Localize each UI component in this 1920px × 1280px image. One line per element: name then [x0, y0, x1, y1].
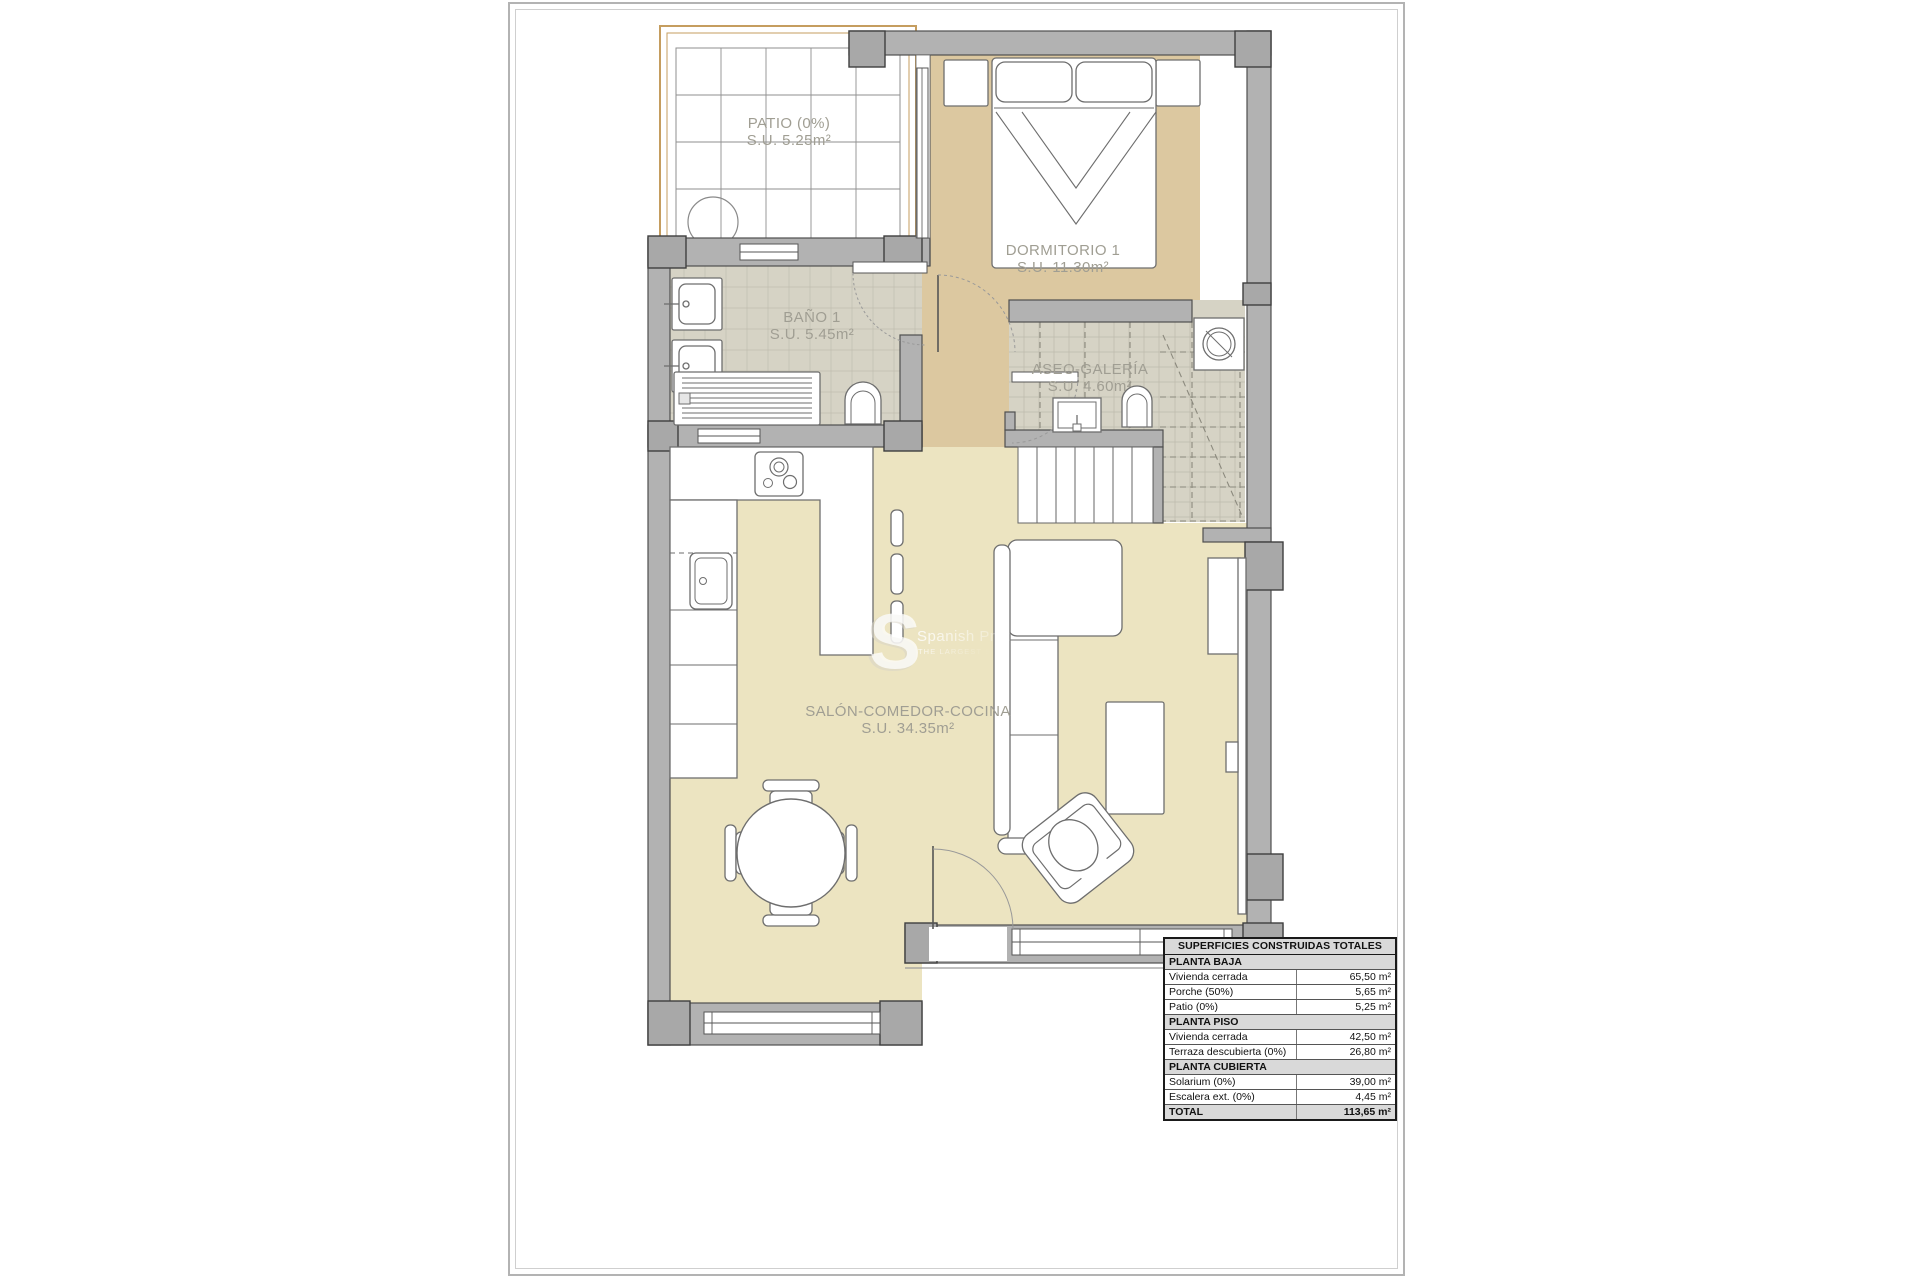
aseo-area-label: S.U. 4.60m² [1048, 378, 1132, 395]
dining-window-icon [704, 1012, 880, 1034]
dormitorio-area-label: S.U. 11.30m² [1017, 259, 1109, 276]
table-section-row: PLANTA CUBIERTA [1165, 1060, 1395, 1075]
aseo-door-jamb [1005, 412, 1015, 430]
table-row: Solarium (0%)39,00 m² [1165, 1075, 1395, 1090]
table-row: Terraza descubierta (0%)26,80 m² [1165, 1045, 1395, 1060]
row-value: 5,65 m² [1296, 985, 1395, 999]
row-value: 42,50 m² [1296, 1030, 1395, 1044]
salon-area-label: S.U. 34.35m² [861, 720, 954, 737]
sink-icon [664, 278, 722, 330]
bath-south-wall [648, 425, 922, 447]
surfaces-table: SUPERFICIES CONSTRUIDAS TOTALES PLANTA B… [1163, 937, 1397, 1121]
row-label: Vivienda cerrada [1165, 1030, 1296, 1044]
row-label: Vivienda cerrada [1165, 970, 1296, 984]
aseo-label: ASEO-GALERÍA [1032, 361, 1149, 378]
chair-icon [725, 825, 736, 881]
row-value: 65,50 m² [1296, 970, 1395, 984]
bedroom-south-wall [1009, 300, 1192, 322]
table-section-row: PLANTA PISO [1165, 1015, 1395, 1030]
dormitorio-label: DORMITORIO 1 [1006, 242, 1121, 259]
nightstand-icon [1156, 60, 1200, 106]
row-label: Solarium (0%) [1165, 1075, 1296, 1089]
watermark-line2: THE LARGEST SPANISH [918, 647, 1025, 656]
chair-icon [763, 915, 819, 926]
bano-area-label: S.U. 5.45m² [770, 326, 854, 343]
section-label: PLANTA PISO [1165, 1015, 1296, 1029]
row-value: 26,80 m² [1296, 1045, 1395, 1059]
page: S S Spanish Prope THE LARGEST SPANISH PA… [0, 0, 1920, 1280]
bed-icon [992, 58, 1156, 268]
row-label: Patio (0%) [1165, 1000, 1296, 1014]
utility-sink-icon [1053, 398, 1101, 432]
stairs-icon [1018, 447, 1153, 523]
row-value: 4,45 m² [1296, 1090, 1395, 1104]
left-wall [648, 238, 670, 1045]
coffee-table-icon [1106, 702, 1164, 814]
chair-icon [763, 780, 819, 791]
kitchen-counter-left [670, 500, 737, 778]
row-label: Porche (50%) [1165, 985, 1296, 999]
watermark-line1: Spanish Prope [917, 628, 1022, 645]
row-value: 5,25 m² [1296, 1000, 1395, 1014]
table-row: Patio (0%)5,25 m² [1165, 1000, 1395, 1015]
total-value: 113,65 m² [1296, 1105, 1395, 1119]
bath-window-icon [698, 429, 760, 443]
patio-window-icon [740, 244, 798, 260]
patio-area-label: S.U. 5.25m² [747, 132, 831, 149]
row-label: Terraza descubierta (0%) [1165, 1045, 1296, 1059]
table-section-row: PLANTA BAJA [1165, 955, 1395, 970]
patio-label: PATIO (0%) [748, 115, 831, 132]
right-wall [1247, 31, 1271, 963]
row-value: 39,00 m² [1296, 1075, 1395, 1089]
stairs-east-wall [1153, 447, 1163, 523]
section-label: PLANTA CUBIERTA [1165, 1060, 1296, 1074]
surfaces-table-title: SUPERFICIES CONSTRUIDAS TOTALES [1165, 939, 1395, 955]
row-label: Escalera ext. (0%) [1165, 1090, 1296, 1104]
cooktop-icon [755, 452, 803, 496]
salon-label: SALÓN-COMEDOR-COCINA [805, 703, 1011, 720]
table-row: Vivienda cerrada65,50 m² [1165, 970, 1395, 985]
bano-label: BAÑO 1 [783, 309, 840, 326]
total-label: TOTAL [1165, 1105, 1296, 1119]
nightstand-icon [944, 60, 988, 106]
ext-stair-south-wall [1203, 528, 1271, 542]
table-row: Escalera ext. (0%)4,45 m² [1165, 1090, 1395, 1105]
chair-icon [846, 825, 857, 881]
washing-machine-icon [1194, 318, 1244, 370]
watermark-logo: S [869, 597, 921, 685]
table-row: Vivienda cerrada42,50 m² [1165, 1030, 1395, 1045]
porch-window-icon [916, 55, 930, 238]
toilet-icon [845, 382, 881, 424]
north-wall [849, 31, 1271, 55]
section-label: PLANTA BAJA [1165, 955, 1296, 969]
table-total-row: TOTAL113,65 m² [1165, 1105, 1395, 1119]
table-row: Porche (50%)5,65 m² [1165, 985, 1395, 1000]
shower-icon [674, 372, 820, 425]
kitchen-sink-icon [690, 553, 732, 609]
floor-plan: S S Spanish Prope THE LARGEST SPANISH PA… [0, 0, 1920, 1280]
